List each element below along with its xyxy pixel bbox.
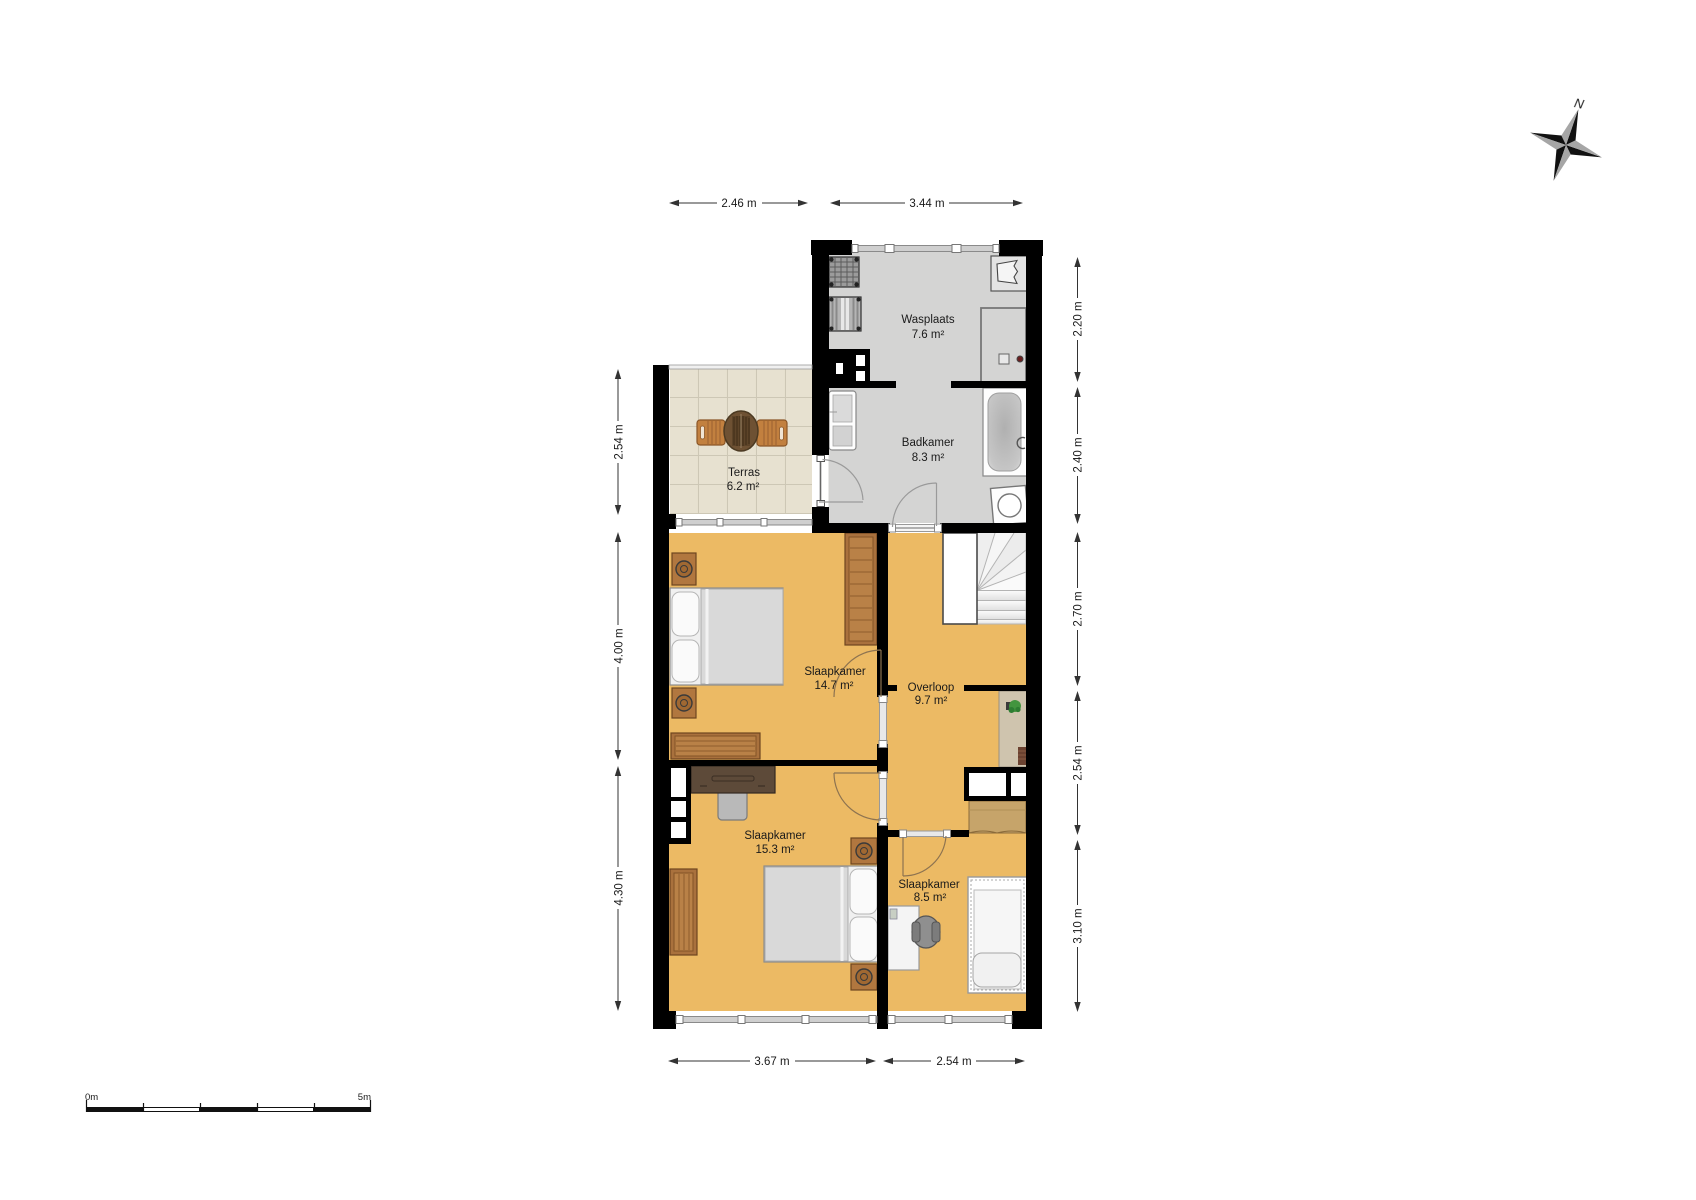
svg-text:Terras: Terras	[728, 467, 760, 479]
svg-text:14.7 m²: 14.7 m²	[815, 680, 854, 692]
svg-text:2.40 m: 2.40 m	[1073, 437, 1085, 472]
svg-text:2.54 m: 2.54 m	[936, 1056, 971, 1068]
svg-text:Wasplaats: Wasplaats	[901, 314, 955, 326]
svg-text:Slaapkamer: Slaapkamer	[744, 830, 806, 842]
svg-text:5m: 5m	[358, 1092, 371, 1103]
svg-text:3.67 m: 3.67 m	[754, 1056, 789, 1068]
svg-text:8.5 m²: 8.5 m²	[914, 892, 947, 904]
svg-text:4.30 m: 4.30 m	[614, 870, 626, 905]
svg-text:Slaapkamer: Slaapkamer	[898, 879, 960, 891]
svg-text:3.44 m: 3.44 m	[909, 198, 944, 210]
svg-text:Overloop: Overloop	[908, 682, 955, 694]
svg-text:Slaapkamer: Slaapkamer	[804, 666, 866, 678]
svg-text:Badkamer: Badkamer	[902, 437, 955, 449]
svg-text:2.20 m: 2.20 m	[1073, 301, 1085, 336]
svg-text:2.54 m: 2.54 m	[1073, 745, 1085, 780]
svg-text:0m: 0m	[85, 1092, 98, 1103]
svg-text:9.7 m²: 9.7 m²	[915, 695, 948, 707]
svg-text:6.2 m²: 6.2 m²	[727, 481, 760, 493]
svg-text:8.3 m²: 8.3 m²	[912, 452, 945, 464]
svg-text:2.70 m: 2.70 m	[1073, 591, 1085, 626]
svg-text:3.10 m: 3.10 m	[1073, 908, 1085, 943]
svg-text:2.46 m: 2.46 m	[721, 198, 756, 210]
svg-text:7.6 m²: 7.6 m²	[912, 329, 945, 341]
svg-text:15.3 m²: 15.3 m²	[756, 844, 795, 856]
svg-text:2.54 m: 2.54 m	[614, 424, 626, 459]
svg-text:4.00 m: 4.00 m	[614, 628, 626, 663]
